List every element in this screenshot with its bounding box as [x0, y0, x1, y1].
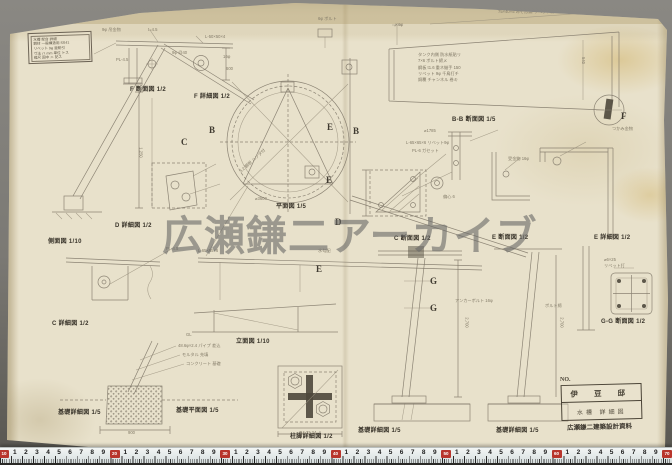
ruler-number: 9 — [322, 449, 326, 456]
ruler-number: 5 — [389, 449, 393, 456]
ruler-number: 4 — [378, 449, 382, 456]
title-block: 水槽 架台 詳細鋼材 一般構造用 SS41リベット 9φ 亜鉛引寸法 ハ mm … — [27, 31, 92, 64]
ruler-number: 5 — [57, 449, 61, 456]
ruler-number: 4 — [488, 449, 492, 456]
ruler-decade-marker: 20 — [110, 450, 120, 458]
ruler-number: 5 — [499, 449, 503, 456]
ruler-decade-marker: 60 — [552, 450, 562, 458]
pencil-annotation: 2,700 — [465, 317, 470, 327]
ruler-number: 3 — [146, 449, 150, 456]
drawing-label: D 詳細図 1/2 — [115, 220, 152, 229]
pencil-annotation: コンクリート 基礎 — [186, 361, 221, 367]
ruler-number: 8 — [422, 449, 426, 456]
pencil-annotation: モルタル 充填 — [182, 352, 208, 358]
ruler-number: 9 — [654, 449, 658, 456]
drawing-label: B-B 断面図 1/5 — [452, 114, 496, 123]
pencil-annotation: 600 — [226, 66, 233, 71]
ruler-number: 1 — [345, 449, 349, 456]
number-label: NO. — [560, 377, 571, 383]
pencil-annotation: ⌀6×25 — [604, 257, 616, 262]
ruler-number: 4 — [599, 449, 603, 456]
info-block-project: 伊 豆 邸 — [562, 384, 641, 403]
pencil-annotation: リベット打 — [604, 263, 625, 269]
pencil-annotation: 1,250 — [139, 147, 144, 157]
ruler-number: 3 — [477, 449, 481, 456]
pencil-annotation: GL — [186, 332, 192, 337]
ruler-number: 7 — [521, 449, 525, 456]
ruler-number: 8 — [201, 449, 205, 456]
pencil-annotation: ⌀3600 — [255, 196, 267, 201]
ruler-decade-marker: 40 — [331, 450, 341, 458]
pencil-annotation: 16φ — [223, 54, 230, 59]
ruler-number: 5 — [610, 449, 614, 456]
archive-stamp: 広瀬鎌二建築設計資料 — [567, 420, 632, 432]
ruler-number: 1 — [566, 449, 570, 456]
section-letter: E — [327, 122, 333, 132]
drawing-label: 基礎詳細図 1/5 — [496, 425, 539, 434]
ruler-number: 6 — [68, 449, 72, 456]
section-letter: C — [181, 137, 188, 147]
ruler-number: 7 — [79, 449, 83, 456]
info-block: 伊 豆 邸 水槽 詳細図 — [561, 383, 643, 421]
ruler-number: 1 — [234, 449, 238, 456]
ruler-decade-marker: 10 — [0, 450, 9, 458]
ruler-decade-marker: 30 — [220, 450, 230, 458]
ruler-number: 8 — [311, 449, 315, 456]
ruler-number: 3 — [588, 449, 592, 456]
ruler-number: 6 — [289, 449, 293, 456]
pencil-annotation: 75×40×5 みぞ形鋼 リベット打 — [498, 9, 555, 15]
ruler-number: 9 — [101, 449, 105, 456]
ruler-decade-marker: 50 — [441, 450, 451, 458]
ruler-number: 4 — [157, 449, 161, 456]
ruler-number: 9 — [212, 449, 216, 456]
ruler-number: 2 — [135, 449, 139, 456]
pencil-annotation: 9φ 吊金物 — [102, 27, 121, 33]
pencil-annotation: L-50×50×4 — [205, 34, 225, 39]
drawing-label: 立面図 1/10 — [236, 336, 270, 345]
info-block-drawing-name: 水槽 詳細図 — [562, 401, 641, 421]
pencil-annotation: t=4.5 — [148, 27, 157, 32]
ruler-number: 7 — [190, 449, 194, 456]
ruler-number: 6 — [400, 449, 404, 456]
drawing-label: F 断面図 1/2 — [130, 84, 166, 93]
ruler-decade-marker: 70 — [662, 450, 672, 458]
ruler-number: 2 — [24, 449, 28, 456]
ruler-number: 7 — [411, 449, 415, 456]
ruler-number: 5 — [278, 449, 282, 456]
drawing-sheet: 水槽 架台 詳細鋼材 一般構造用 SS41リベット 9φ 亜鉛引寸法 ハ mm … — [0, 0, 672, 465]
pencil-annotation: 24 72 24 — [300, 430, 316, 435]
drawing-label: 側面図 1/10 — [48, 236, 82, 245]
pencil-annotation: 48.6φ×2.4 パイプ 差込 — [178, 343, 220, 349]
note-line: 鋼板 t1.6 重ネ継手 150 — [418, 65, 461, 71]
ruler-number: 3 — [256, 449, 260, 456]
ruler-number: 2 — [466, 449, 470, 456]
section-letter: F — [621, 111, 627, 121]
pencil-annotation: 偏心 6 — [443, 194, 455, 200]
pencil-annotation: 9φ @40 — [172, 50, 187, 55]
ruler-number: 1 — [455, 449, 459, 456]
note-line: 銅覆 チャンネル 巻キ — [418, 77, 461, 83]
ruler-number: 3 — [35, 449, 39, 456]
pencil-annotation: 900 — [128, 430, 135, 435]
section-letter: E — [326, 175, 332, 185]
drawing-label: G-G 断面図 1/2 — [601, 316, 645, 325]
ruler-number: 8 — [532, 449, 536, 456]
title-block-text: 水槽 架台 詳細鋼材 一般構造用 SS41リベット 9φ 亜鉛引寸法 ハ mm … — [30, 33, 90, 61]
section-letter: G — [430, 276, 437, 286]
measuring-ruler: 1012345678920123456789301234567894012345… — [0, 447, 672, 465]
drawing-label: F 詳細図 1/2 — [194, 91, 230, 100]
pencil-annotation: 〆6φ — [394, 22, 403, 28]
drawing-label: C 詳細図 1/2 — [52, 318, 89, 327]
ruler-number: 8 — [643, 449, 647, 456]
section-letter: G — [430, 303, 437, 313]
ruler-number: 2 — [356, 449, 360, 456]
ruler-number: 6 — [621, 449, 625, 456]
section-letter: E — [316, 264, 322, 274]
pencil-annotation: ⌀1785 — [424, 128, 436, 133]
pencil-annotation: アンカーボルト 16φ — [455, 298, 493, 304]
pencil-annotation: PL-6 ガセット — [412, 148, 439, 154]
ruler-number: 4 — [46, 449, 50, 456]
drawing-label: 基礎平面図 1/5 — [176, 405, 219, 414]
ruler-number: 9 — [433, 449, 437, 456]
section-letter: B — [209, 125, 215, 135]
pencil-annotation: つかみ金物 — [612, 126, 633, 132]
ruler-number: 7 — [300, 449, 304, 456]
ruler-number: 1 — [124, 449, 128, 456]
ruler-number: 2 — [577, 449, 581, 456]
drawing-label: E 詳細図 1/2 — [594, 232, 630, 241]
ruler-number: 5 — [168, 449, 172, 456]
ruler-number: 8 — [90, 449, 94, 456]
drawing-label: 基礎詳細図 1/5 — [58, 407, 101, 416]
ruler-number: 4 — [267, 449, 271, 456]
section-letter: B — [353, 126, 359, 136]
pencil-annotation: L-65×65×6 リベット9φ — [406, 140, 449, 146]
ruler-number: 6 — [179, 449, 183, 456]
ruler-number: 3 — [367, 449, 371, 456]
pencil-annotation: 受金物 16φ — [508, 156, 529, 162]
ruler-number: 9 — [543, 449, 547, 456]
ruler-number: 1 — [13, 449, 17, 456]
drawing-label: 基礎詳細図 1/5 — [358, 425, 401, 434]
pencil-annotation: PL-4.5 — [116, 57, 128, 62]
tank-section-notes: タンク内側 防水紙貼リ7×6 ボルト締メ鋼板 t1.6 重ネ継手 150リベット… — [418, 52, 461, 83]
archive-photo: 水槽 架台 詳細鋼材 一般構造用 SS41リベット 9φ 亜鉛引寸法 ハ mm … — [0, 0, 672, 465]
ruler-number: 7 — [632, 449, 636, 456]
archive-watermark: 広瀬鎌二アーカイブ — [162, 202, 538, 262]
pencil-annotation: ボルト締 — [545, 303, 562, 309]
ruler-number: 2 — [245, 449, 249, 456]
pencil-annotation: 6φ ボルト — [318, 16, 337, 22]
pencil-annotation: 2,700 — [560, 317, 565, 327]
ruler-number: 6 — [510, 449, 514, 456]
pencil-annotation: 540 — [581, 57, 586, 64]
